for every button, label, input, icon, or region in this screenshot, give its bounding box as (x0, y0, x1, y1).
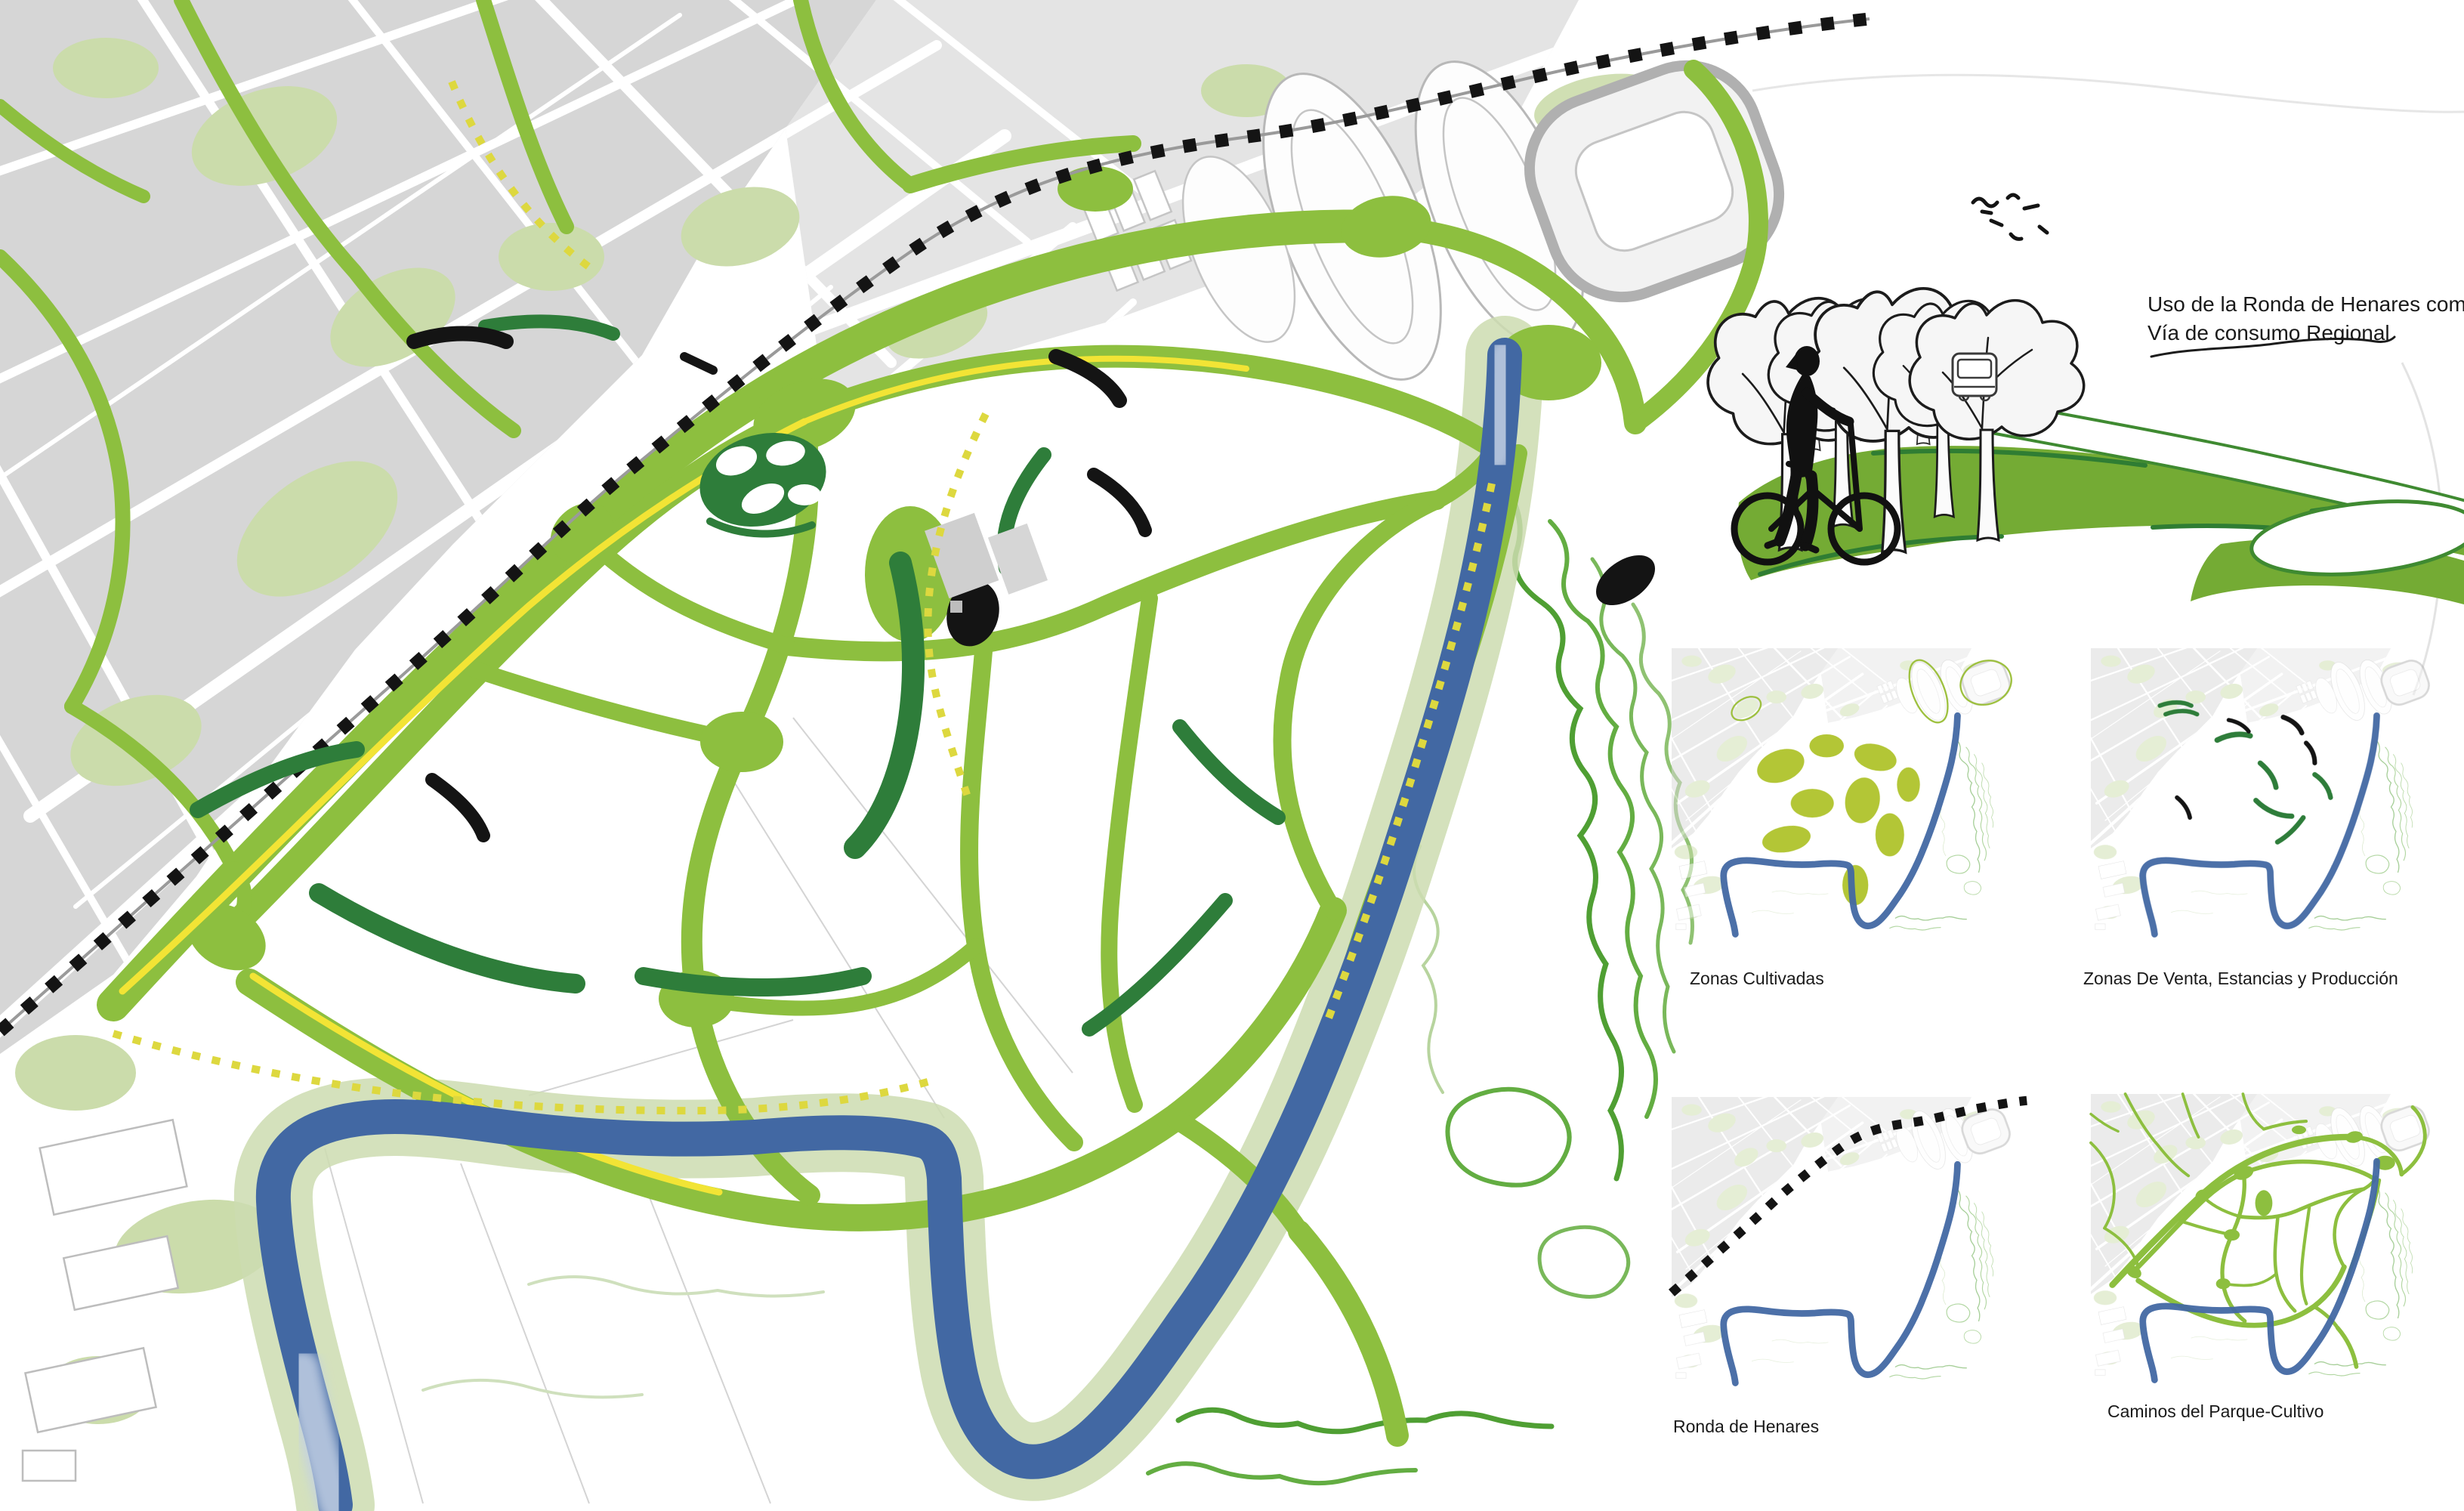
thumbnail-ronda-de-henares: Ronda de Henares (1663, 1077, 2027, 1436)
river-fade-north (1496, 355, 1505, 455)
cultivated-zones (1752, 734, 1920, 905)
birds-icon (1973, 195, 2047, 239)
annotation-line-1: Uso de la Ronda de Henares como (2148, 292, 2464, 316)
thumbnail-caminos-del-parque-cultivo: Caminos del Parque-Cultivo (2083, 1074, 2433, 1421)
thumbnail-zonas-cultivadas: Zonas Cultivadas (1663, 628, 2018, 988)
thumbnail-label-zonas-cultivadas: Zonas Cultivadas (1690, 969, 1824, 988)
thumbnail-label-zonas-de-venta: Zonas De Venta, Estancias y Producción (2083, 969, 2398, 988)
annotation-line-2: Vía de consumo Regional (2148, 321, 2390, 345)
thumbnail-label-caminos: Caminos del Parque-Cultivo (2107, 1401, 2324, 1421)
main-map (0, 0, 1870, 1505)
masterplan-poster: Uso de la Ronda de Henares como Vía de c… (0, 0, 2464, 1511)
thumbnail-zonas-de-venta: Zonas De Venta, Estancias y Producción (2083, 628, 2433, 988)
perspective-illustration: Uso de la Ronda de Henares como Vía de c… (1708, 75, 2464, 695)
van-icon (1953, 354, 1996, 400)
thumbnail-label-ronda-de-henares: Ronda de Henares (1673, 1417, 1819, 1436)
